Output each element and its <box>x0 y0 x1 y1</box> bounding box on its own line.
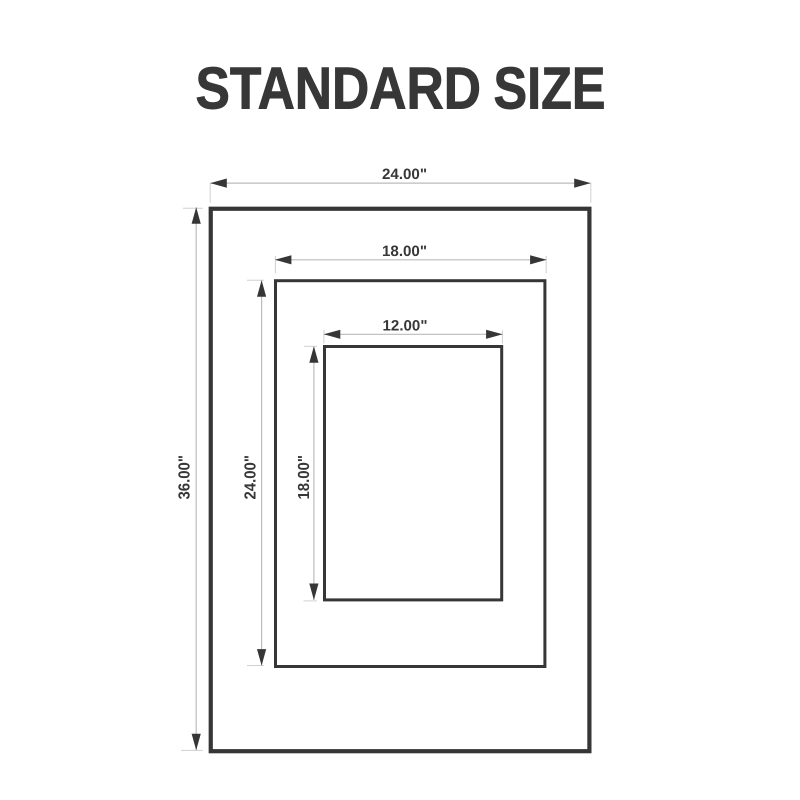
svg-text:STANDARD: STANDARD <box>196 55 482 122</box>
svg-text:36.00": 36.00" <box>177 455 194 500</box>
svg-text:24.00": 24.00" <box>382 166 427 183</box>
svg-text:18.00": 18.00" <box>382 243 427 260</box>
svg-text:18.00": 18.00" <box>296 455 313 500</box>
svg-text:SIZE: SIZE <box>494 55 606 122</box>
svg-text:24.00": 24.00" <box>242 455 259 500</box>
svg-text:12.00": 12.00" <box>383 317 428 334</box>
